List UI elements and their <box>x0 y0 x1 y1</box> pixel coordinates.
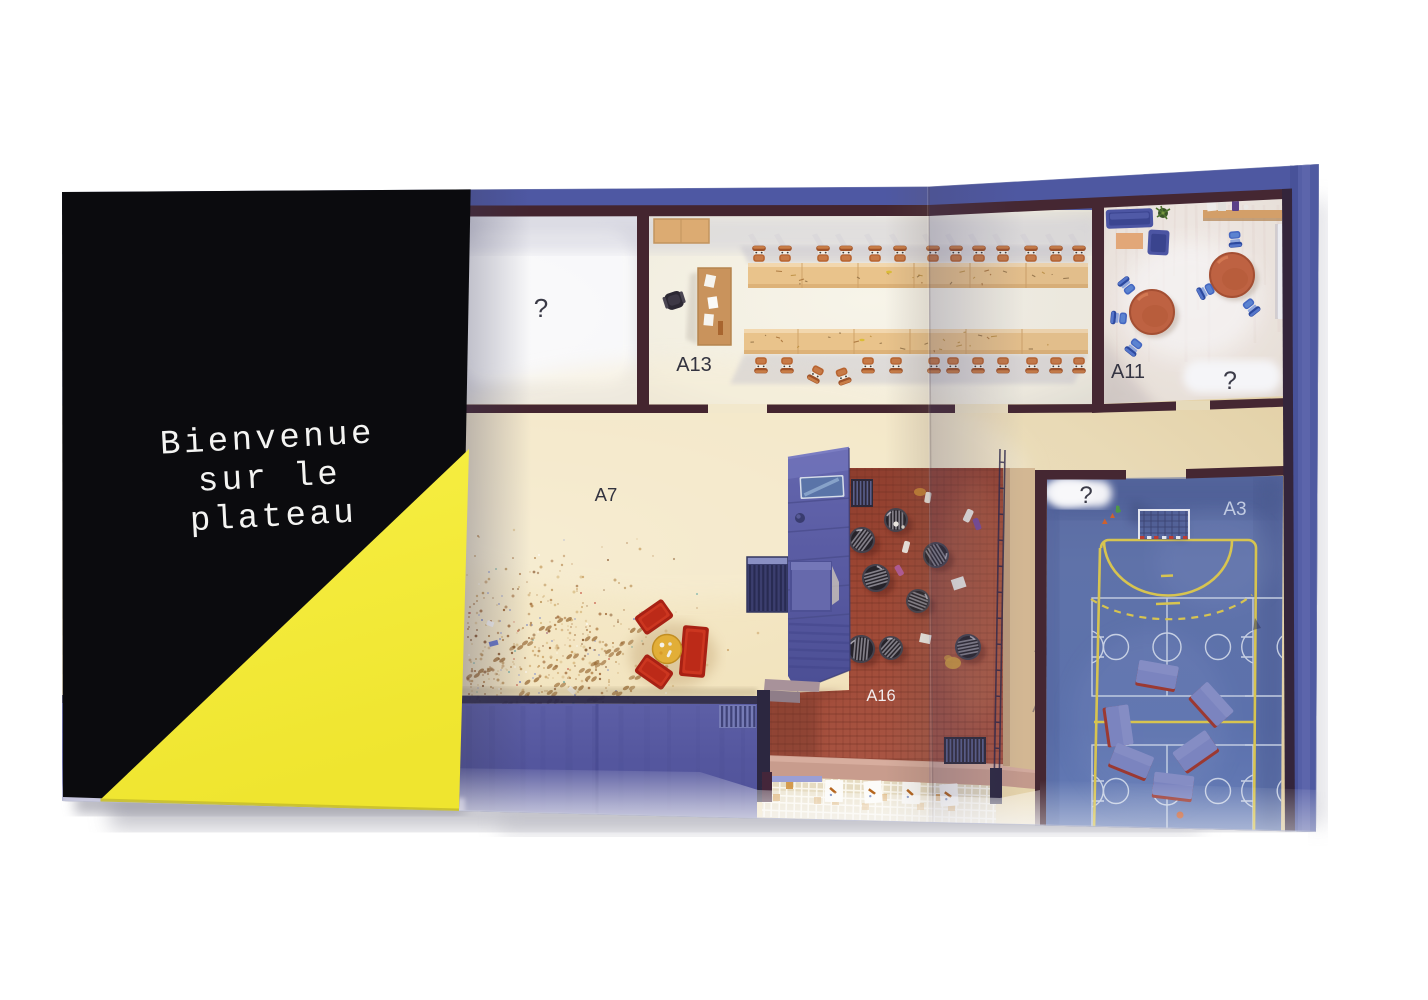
svg-text:?: ? <box>534 293 548 323</box>
svg-text:A7: A7 <box>595 484 618 505</box>
svg-text:sur le: sur le <box>197 456 342 501</box>
svg-text:A13: A13 <box>676 354 712 376</box>
